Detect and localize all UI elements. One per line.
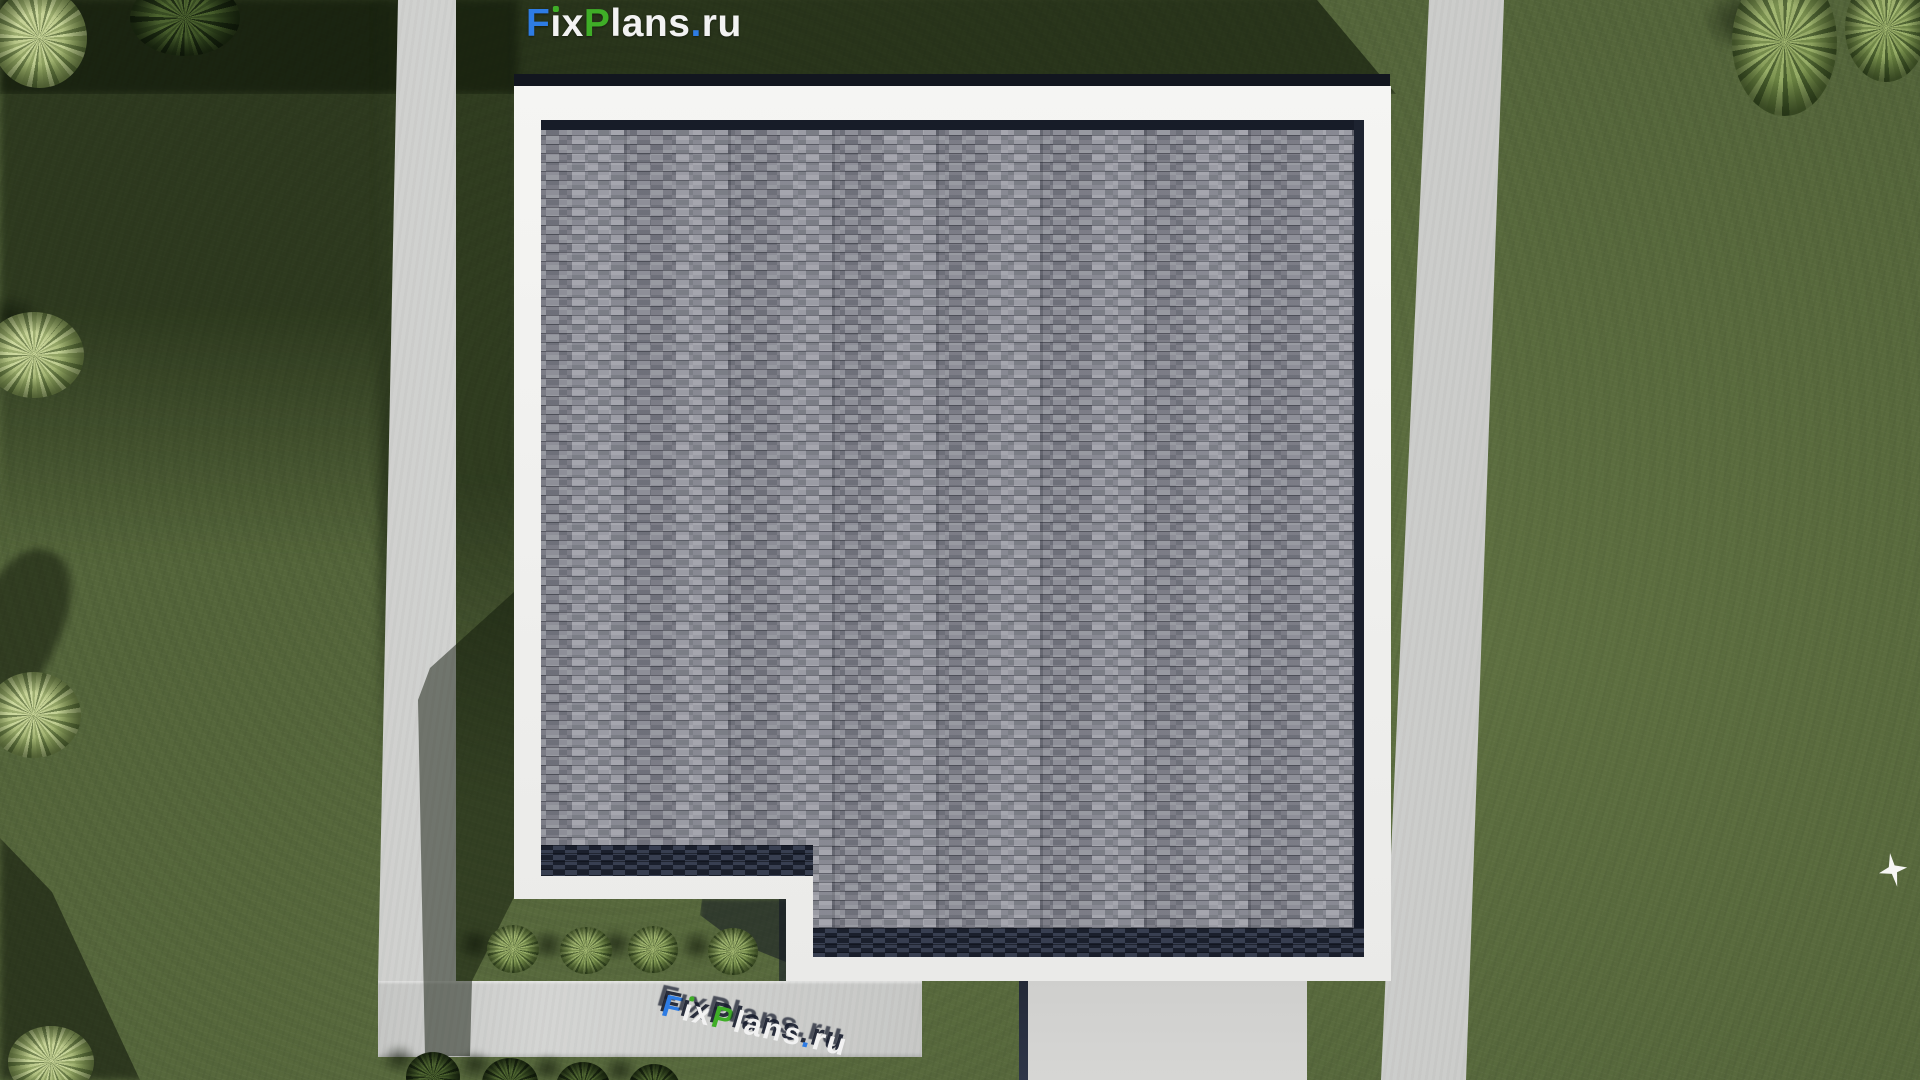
notch-garden-bush — [628, 926, 678, 973]
logo-letter: x — [562, 2, 584, 45]
logo-letter: lans — [610, 2, 690, 45]
logo-letter: F — [526, 2, 550, 45]
driveway-edge-shadow — [1019, 981, 1028, 1080]
logo-letter: P — [584, 2, 611, 45]
aerial-render-scene: FıxPlans.ru FıxPlans.ru — [0, 0, 1920, 1080]
logo-letter: ı — [550, 2, 561, 45]
roof-edge-bottom-left — [541, 845, 813, 876]
notch-garden-bush — [708, 928, 758, 975]
watermark-logo: FıxPlans.ru — [526, 2, 742, 46]
roof-edge-right — [1354, 120, 1364, 957]
notch-garden-bush — [560, 927, 612, 974]
logo-i-dot — [553, 6, 559, 12]
roof-edge-bottom-right — [813, 928, 1364, 957]
roof-edge-top — [541, 120, 1364, 130]
logo-i-dot — [689, 996, 695, 1002]
logo-letter: ru — [702, 2, 742, 45]
driveway — [1028, 981, 1307, 1080]
north-wall-edge — [514, 74, 1390, 86]
logo-letter: . — [690, 2, 701, 45]
notch-garden-bush — [487, 925, 539, 973]
